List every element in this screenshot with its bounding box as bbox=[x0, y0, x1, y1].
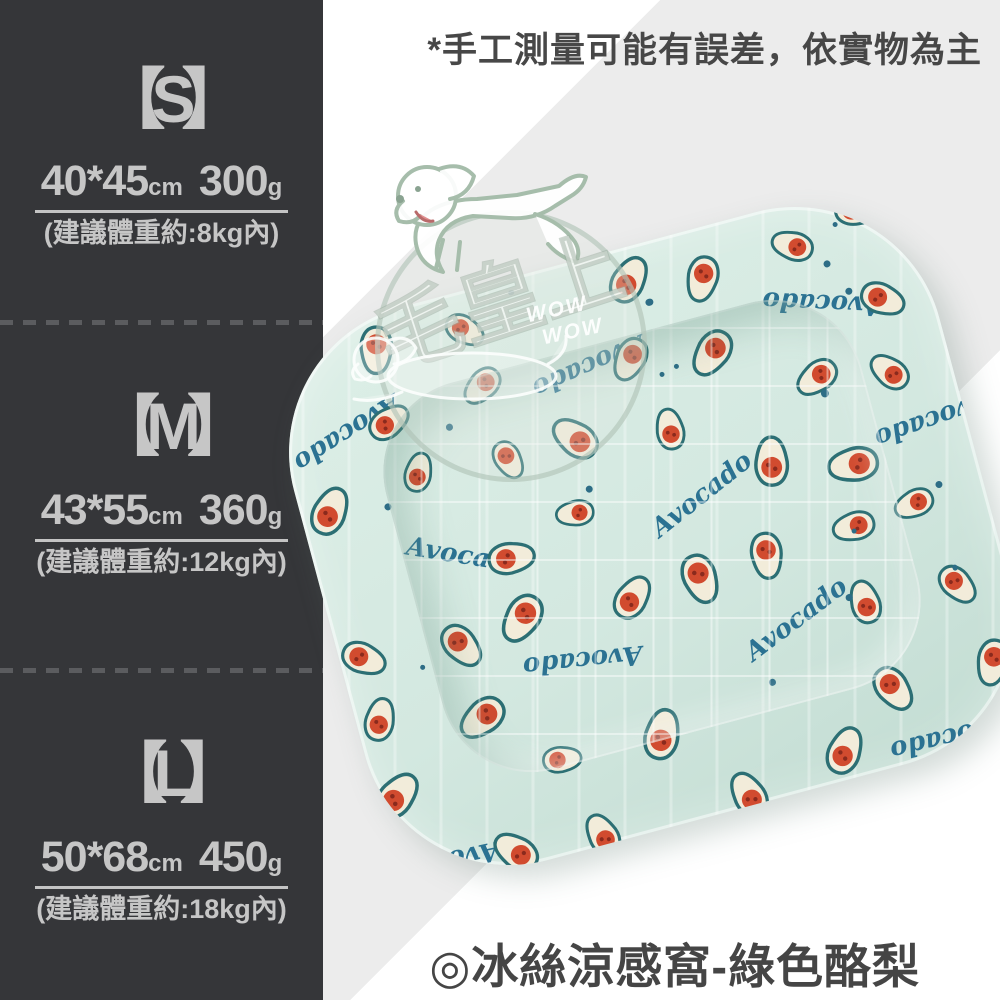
size-spec-m: 43*55cm360g bbox=[35, 489, 289, 542]
avocado-icon bbox=[920, 547, 989, 616]
product-title: ◎冰絲涼感窩-綠色酪梨 bbox=[429, 928, 920, 997]
size-block-s: 【S】 40*45cm300g (建議體重約:8kg內) bbox=[0, 66, 323, 249]
size-weight: 300 bbox=[199, 157, 268, 205]
product-infographic: 【S】 40*45cm300g (建議體重約:8kg內) 【M】 43*55cm… bbox=[0, 0, 1000, 1000]
size-block-l: 【L】 50*68cm450g (建議體重約:18kg內) bbox=[0, 740, 323, 925]
avocado-icon bbox=[965, 625, 1000, 692]
size-weight: 450 bbox=[199, 833, 268, 881]
pattern-dot bbox=[823, 259, 832, 268]
measurement-disclaimer: *手工測量可能有誤差，依實物為主 bbox=[427, 22, 982, 73]
avocado-icon bbox=[764, 219, 828, 275]
size-note-l: (建議體重約:18kg內) bbox=[0, 895, 323, 925]
size-weight: 360 bbox=[199, 486, 268, 534]
size-dim-unit: cm bbox=[148, 503, 183, 530]
dashed-divider bbox=[0, 668, 323, 673]
avocado-icon bbox=[591, 245, 663, 322]
size-label-l: 【L】 bbox=[0, 740, 323, 806]
size-spec-l: 50*68cm450g bbox=[35, 836, 289, 889]
size-dims: 50*68 bbox=[41, 833, 148, 881]
size-panel: 【S】 40*45cm300g (建議體重約:8kg內) 【M】 43*55cm… bbox=[0, 0, 323, 1000]
size-dims: 40*45 bbox=[41, 157, 148, 205]
size-note-s: (建議體重約:8kg內) bbox=[0, 219, 323, 249]
dashed-divider bbox=[0, 320, 323, 325]
avocado-icon bbox=[675, 241, 733, 308]
avocado-icon bbox=[844, 266, 914, 329]
size-dim-unit: cm bbox=[148, 850, 183, 877]
size-weight-unit: g bbox=[268, 850, 283, 877]
avocado-icon bbox=[428, 297, 494, 359]
avocado-icon bbox=[352, 316, 400, 376]
size-label-s: 【S】 bbox=[0, 66, 323, 132]
size-dim-unit: cm bbox=[148, 174, 183, 201]
size-spec-s: 40*45cm300g bbox=[35, 160, 289, 213]
pattern-dot bbox=[645, 298, 654, 307]
size-note-m: (建議體重約:12kg內) bbox=[0, 548, 323, 578]
size-dims: 43*55 bbox=[41, 486, 148, 534]
pattern-dot bbox=[420, 664, 427, 671]
size-weight-unit: g bbox=[268, 503, 283, 530]
pattern-dot bbox=[508, 290, 515, 297]
size-weight-unit: g bbox=[268, 174, 283, 201]
